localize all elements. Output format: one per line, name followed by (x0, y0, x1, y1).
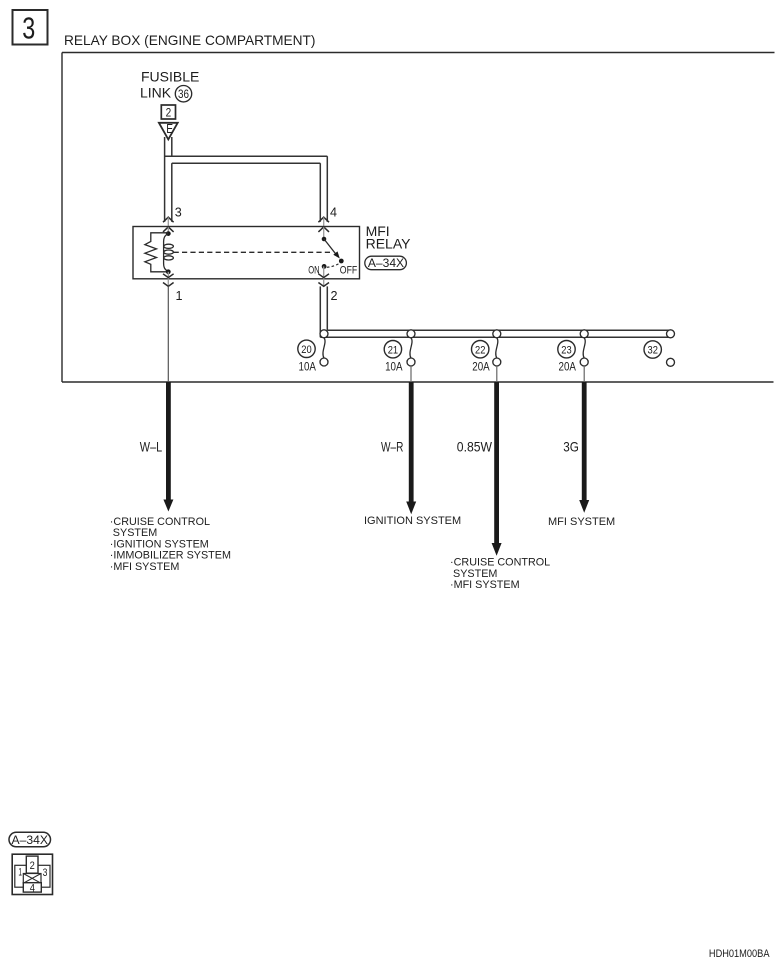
svg-text:ON: ON (308, 265, 319, 277)
svg-text:32: 32 (648, 345, 658, 357)
svg-text:3G: 3G (563, 438, 579, 454)
svg-text:A–34X: A–34X (12, 834, 49, 847)
svg-text:0.85W: 0.85W (457, 438, 493, 454)
svg-text:·CRUISE CONTROL: ·CRUISE CONTROL (110, 516, 210, 528)
svg-text:LINK: LINK (140, 84, 172, 100)
svg-text:4: 4 (330, 205, 337, 219)
svg-text:1: 1 (18, 867, 22, 879)
svg-text:·CRUISE CONTROL: ·CRUISE CONTROL (450, 557, 550, 569)
svg-text:3: 3 (22, 11, 35, 46)
svg-text:E: E (166, 121, 173, 136)
svg-text:OFF: OFF (340, 265, 358, 277)
svg-text:A–34X: A–34X (368, 256, 404, 270)
svg-text:1: 1 (176, 289, 183, 303)
svg-text:RELAY BOX (ENGINE COMPARTMENT): RELAY BOX (ENGINE COMPARTMENT) (64, 33, 315, 48)
svg-text:W–R: W–R (381, 438, 403, 454)
svg-text:3: 3 (175, 205, 182, 219)
svg-text:SYSTEM: SYSTEM (113, 527, 157, 539)
svg-text:20A: 20A (559, 360, 577, 374)
svg-text:2: 2 (166, 105, 172, 119)
svg-text:20A: 20A (472, 360, 490, 374)
svg-text:23: 23 (561, 344, 571, 356)
svg-text:3: 3 (43, 867, 48, 879)
svg-text:IGNITION SYSTEM: IGNITION SYSTEM (364, 515, 461, 527)
svg-text:21: 21 (388, 344, 398, 356)
svg-text:20: 20 (301, 344, 311, 356)
svg-text:W–L: W–L (140, 438, 163, 454)
svg-text:22: 22 (475, 344, 485, 356)
svg-text:HDH01M00BA: HDH01M00BA (709, 948, 770, 960)
svg-text:10A: 10A (385, 360, 403, 374)
svg-text:10A: 10A (299, 360, 317, 374)
svg-text:·IMMOBILIZER SYSTEM: ·IMMOBILIZER SYSTEM (110, 550, 231, 562)
svg-text:·MFI SYSTEM: ·MFI SYSTEM (110, 561, 180, 573)
svg-text:MFI SYSTEM: MFI SYSTEM (548, 516, 615, 528)
svg-text:2: 2 (331, 289, 338, 303)
svg-text:4: 4 (30, 882, 35, 894)
svg-text:FUSIBLE: FUSIBLE (141, 68, 199, 84)
svg-text:36: 36 (178, 89, 189, 101)
svg-text:·MFI SYSTEM: ·MFI SYSTEM (450, 579, 520, 591)
svg-text:SYSTEM: SYSTEM (453, 568, 497, 580)
svg-text:2: 2 (30, 860, 35, 872)
svg-text:RELAY: RELAY (366, 235, 412, 251)
svg-text:·IGNITION SYSTEM: ·IGNITION SYSTEM (110, 538, 209, 550)
